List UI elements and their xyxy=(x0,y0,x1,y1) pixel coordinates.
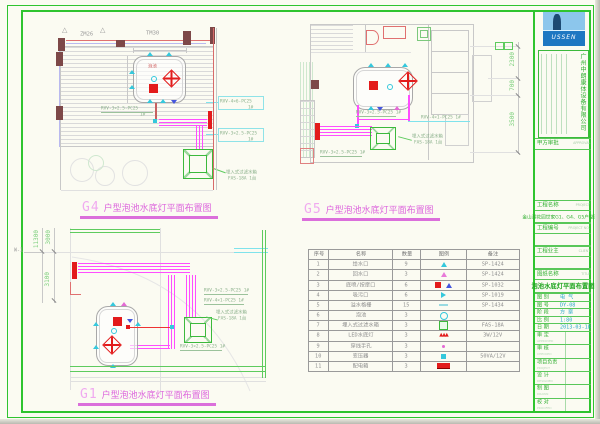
g4-filter-tank xyxy=(183,149,213,179)
g5-stair-step xyxy=(431,72,469,94)
legend-cell-text: 吸污口 xyxy=(353,293,369,298)
g4-dim-line xyxy=(133,50,186,51)
info-value: DY-08 xyxy=(560,303,575,308)
legend-row: 5溢水格栅15SP-1434 xyxy=(309,301,519,311)
info-label: 图 号 xyxy=(537,303,549,308)
titleblock-info-row: 图 别电 气 xyxy=(535,294,591,302)
g4-window-label: TM30 xyxy=(146,31,159,35)
legend-cell: 5 xyxy=(309,301,329,310)
g5-led-underwater-light xyxy=(369,81,378,90)
g4-inlet-marker xyxy=(160,99,166,103)
legend-cell-text: 底喷/按摩口 xyxy=(346,282,375,287)
g1-drawing-title: G1户型泡池水底灯平面布置图 xyxy=(78,383,216,404)
legend-cell: 11 xyxy=(309,362,329,371)
g1-dim-line xyxy=(42,228,43,303)
g1-junction-box xyxy=(170,325,174,329)
sign-label: 校 对 xyxy=(537,400,549,405)
project-label: 工程名称 xyxy=(537,203,559,208)
g4-dim-tick xyxy=(186,48,187,53)
legend-cell: 序号 xyxy=(309,250,329,259)
client-en: CLIENT xyxy=(578,250,590,253)
legend-cell-text: 配电箱 xyxy=(353,364,369,369)
number-value-row xyxy=(535,234,591,246)
legend-cell-text: 9 xyxy=(317,344,320,349)
legend-cell: SP-1424 xyxy=(467,270,519,279)
g1-green-line xyxy=(70,229,160,230)
g5-bath-fixture xyxy=(383,26,406,39)
g5-cable-label-bottom: RVV-3×2.5-PC25 1# xyxy=(320,150,365,154)
legend-cell: 6 xyxy=(309,311,329,320)
titleblock-info-row: 阶 段方 案 xyxy=(535,309,591,317)
g5-cable-line xyxy=(357,119,409,120)
red-filled-rect-icon xyxy=(437,363,450,369)
g4-cable-label-bottom: RVV-3×2.5-PC25 xyxy=(101,106,138,110)
g1-pool-outline xyxy=(96,306,138,366)
g4-filter-label-2: FAS-18A 1台 xyxy=(228,176,256,180)
legend-cell: 回水口 xyxy=(329,270,393,279)
magenta-triangle-icon xyxy=(441,272,447,277)
logo-brand-text: USSEN xyxy=(543,34,585,42)
g4-wall-column xyxy=(56,52,63,66)
g5-cable-label-pool: RVV-3×2.5-PC25 1# xyxy=(356,110,401,114)
legend-cell-text: 6 xyxy=(405,293,408,298)
approval-en: APPROVAL xyxy=(573,142,590,145)
g1-dim-a: 3000 xyxy=(45,230,52,244)
legend-row: 4吸污口6SP-1019 xyxy=(309,291,519,301)
legend-row: 8LED水底灯33W/12V xyxy=(309,331,519,341)
legend-cell-text: 11 xyxy=(315,364,321,369)
legend-row: 11配电箱3 xyxy=(309,362,519,371)
legend-cell-text: 泡池 xyxy=(355,313,366,318)
g5-filter-tank xyxy=(370,127,396,150)
legend-cell-text: SP-1019 xyxy=(482,293,504,298)
g1-red-bracket xyxy=(70,282,81,295)
cyan-circle-icon xyxy=(440,312,448,320)
g5-leader-line xyxy=(320,156,362,157)
legend-cell-text: 8 xyxy=(317,333,320,338)
number-en: PROJECT NO. xyxy=(569,227,590,230)
sign-sublabel: APPROVED xyxy=(537,340,553,343)
g5-leader-line xyxy=(408,121,470,122)
g4-roof-mark-icon: △ xyxy=(100,27,105,34)
g1-grid-ref: W-1 xyxy=(14,248,23,252)
legend-row: 10变压器350VA/12V xyxy=(309,352,519,362)
legend-cell-text: 序号 xyxy=(313,252,324,257)
sign-sublabel: DESIGNED xyxy=(537,380,553,383)
legend-cell xyxy=(421,291,467,300)
legend-cell-text: 3 xyxy=(405,323,408,328)
g5-inlet-marker xyxy=(385,63,391,67)
g4-cable-tag: 1# xyxy=(248,137,253,141)
g5-dim-extension xyxy=(488,78,518,79)
legend-cell: 6 xyxy=(393,281,421,290)
g4-title-code: G4 xyxy=(82,200,100,215)
legend-cell: 吸污口 xyxy=(329,291,393,300)
g4-shrub-green xyxy=(88,155,104,171)
g1-filter-label-1: 埋入式过滤水箱 xyxy=(216,310,247,314)
g4-conduit-bundle-h xyxy=(159,119,207,126)
paper-edge-bottom xyxy=(0,419,600,424)
legend-cell-text: 图例 xyxy=(438,252,449,257)
info-label: 阶 段 xyxy=(537,310,549,315)
g5-level-mark xyxy=(504,42,513,50)
g4-cable-drop xyxy=(155,103,157,120)
legend-cell-text: 穿线手孔 xyxy=(350,344,371,349)
legend-cell: SP-1434 xyxy=(467,301,519,310)
legend-cell xyxy=(421,281,467,290)
legend-cell xyxy=(421,260,467,269)
g4-leader-line xyxy=(101,112,153,113)
g4-inlet-marker xyxy=(166,52,172,56)
legend-cell: 埋入式过滤水箱 xyxy=(329,321,393,330)
cyan-play-icon xyxy=(441,292,446,298)
g4-inlet-marker xyxy=(147,99,153,103)
client-row: 工程业主 CLIENT xyxy=(535,246,591,257)
legend-cell: 10 xyxy=(309,352,329,361)
g5-stair-step xyxy=(431,51,469,73)
g1-title-text: 户型泡池水底灯平面布置图 xyxy=(102,391,210,401)
g1-leader-line xyxy=(204,304,244,305)
g4-dim-line xyxy=(127,56,128,103)
number-label: 工程编号 xyxy=(537,226,559,231)
g5-inlet-marker xyxy=(368,63,374,67)
g4-pool-label: 泡池 xyxy=(148,64,157,68)
legend-cell: 4 xyxy=(309,291,329,300)
g5-dim-value-3: 3500 xyxy=(509,112,516,126)
g4-junction-box xyxy=(153,119,157,123)
g1-fence-line xyxy=(70,371,266,372)
g1-inlet-marker xyxy=(93,322,99,326)
legend-cell: 3 xyxy=(393,321,421,330)
legend-cell: 1 xyxy=(309,260,329,269)
legend-cell: SP-1019 xyxy=(467,291,519,300)
legend-cell-text: 3 xyxy=(405,364,408,369)
g4-distribution-box xyxy=(208,111,212,129)
g5-stair-step xyxy=(431,93,469,115)
sign-label: 审 定 xyxy=(537,333,549,338)
project-en: PROJECT xyxy=(576,204,590,207)
sign-sublabel: DRAWN xyxy=(537,393,548,396)
legend-cell-text: SP-1032 xyxy=(482,282,504,287)
legend-cell: SP-1032 xyxy=(467,281,519,290)
g1-cable-label-2: RVV-4×1-PC25 1# xyxy=(204,298,244,302)
g4-wall-column xyxy=(116,40,125,47)
g4-dim-tick xyxy=(133,48,134,53)
approval-row: 甲方审批 APPROVAL xyxy=(535,138,591,150)
sign-label: 设 计 xyxy=(537,373,549,378)
legend-cell-text: 7 xyxy=(317,323,320,328)
g4-right-boundary xyxy=(216,28,217,190)
legend-cell: 备注 xyxy=(467,250,519,259)
legend-cell: 9 xyxy=(309,342,329,351)
legend-cell-text: 2 xyxy=(317,272,320,277)
g4-drawing-title: G4户型泡池水底灯平面布置图 xyxy=(80,196,218,217)
legend-cell xyxy=(421,270,467,279)
sign-label: 制 图 xyxy=(537,386,549,391)
g5-dim-value-2: 700 xyxy=(509,80,516,91)
legend-row: 2回水口3SP-1424 xyxy=(309,270,519,280)
g4-cable-label-right-top: RVV-4×6-PC25 xyxy=(220,99,252,103)
sign-rows: 审 定APPROVED审 核CHECKED项目负责PROJECT设 计DESIG… xyxy=(535,331,591,411)
titleblock-sign-row: 审 定APPROVED xyxy=(535,331,591,344)
legend-cell-text: 3 xyxy=(405,272,408,277)
legend-cell-text: FAS-18A xyxy=(482,323,504,328)
legend-cell-text: 变压器 xyxy=(353,354,369,359)
g1-green-line xyxy=(70,232,160,233)
g1-drain-marker xyxy=(127,319,133,323)
company-logo: USSEN xyxy=(543,12,585,46)
legend-cell xyxy=(467,362,519,371)
company-box: 广州中朗康体设备有限公司 xyxy=(538,50,589,138)
legend-cell: 3 xyxy=(393,331,421,340)
legend-cell-text: 6 xyxy=(317,313,320,318)
info-value: 1:80 xyxy=(560,318,572,323)
g5-stair-step xyxy=(431,30,469,52)
g1-inlet-marker xyxy=(93,345,99,349)
legend-cell: 配电箱 xyxy=(329,362,393,371)
legend-cell: 3W/12V xyxy=(467,331,519,340)
legend-cell xyxy=(421,331,467,340)
legend-cell-text: 名称 xyxy=(355,252,366,257)
g4-right-wall xyxy=(213,28,214,190)
g4-wall-column xyxy=(183,31,191,45)
g4-deck-bottom-line xyxy=(61,146,213,147)
legend-cell: 6 xyxy=(393,291,421,300)
g5-filter-label-2: FAS-18A 1台 xyxy=(414,140,442,144)
g5-dim-value-1: 2300 xyxy=(509,52,516,66)
titleblock-sign-row: 校 对PROOFED xyxy=(535,398,591,411)
sign-label: 项目负责 xyxy=(537,360,557,365)
paper-edge-right xyxy=(595,0,600,424)
legend-cell-text: 3 xyxy=(405,354,408,359)
legend-cell: 底喷/按摩口 xyxy=(329,281,393,290)
g1-conduit-bundle-h xyxy=(78,263,190,275)
g1-cable-label-3: RVV-3×2.5-PC25 1# xyxy=(180,344,225,348)
g1-dim-line xyxy=(54,228,55,303)
g1-leader-line xyxy=(204,294,248,295)
sign-sublabel: CHECKED xyxy=(537,353,552,356)
g1-inlet-marker xyxy=(110,302,116,306)
company-info-lines xyxy=(541,54,567,134)
g1-title-code: G1 xyxy=(80,387,98,402)
legend-cell-text: 5 xyxy=(317,303,320,308)
legend-cell: 3 xyxy=(393,362,421,371)
g1-fence-line xyxy=(70,366,266,367)
legend-cell xyxy=(421,301,467,310)
g4-door-label: ZM26 xyxy=(80,32,93,36)
legend-row: 3底喷/按摩口6SP-1032 xyxy=(309,281,519,291)
legend-header-row: 序号名称数量图例备注 xyxy=(309,250,519,260)
legend-cell-text: 溢水格栅 xyxy=(350,303,371,308)
legend-cell: 泡池 xyxy=(329,311,393,320)
legend-cell-text: 埋入式过滤水箱 xyxy=(342,323,379,328)
g1-dim-b: 3100 xyxy=(44,272,51,286)
legend-cell: 数量 xyxy=(393,250,421,259)
legend-cell: 溢水格栅 xyxy=(329,301,393,310)
g1-boundary-line xyxy=(70,381,266,382)
g4-inlet-marker xyxy=(147,52,153,56)
legend-cell: LED水底灯 xyxy=(329,331,393,340)
cyan-filled-square-icon xyxy=(441,354,446,359)
legend-cell-text: 3 xyxy=(405,313,408,318)
g4-drain-marker xyxy=(171,100,177,104)
g1-dim-total: 11300 xyxy=(33,230,40,248)
info-label: 日 期 xyxy=(537,325,549,330)
legend-cell xyxy=(421,321,467,330)
legend-cell-text: SP-1424 xyxy=(482,272,504,277)
legend-cell xyxy=(467,342,519,351)
cyan-triangle-icon xyxy=(441,262,447,267)
g5-title-code: G5 xyxy=(304,202,322,217)
legend-cell: 9 xyxy=(393,260,421,269)
legend-cell-text: 15 xyxy=(403,303,409,308)
g1-boundary-green-v xyxy=(262,230,263,378)
g5-distribution-box xyxy=(315,123,320,140)
legend-table: 序号名称数量图例备注1给水口9SP-14242回水口3SP-14243底喷/按摩… xyxy=(308,249,520,372)
g4-wall-column xyxy=(58,38,65,51)
legend-cell: 图例 xyxy=(421,250,467,259)
legend-cell: 3 xyxy=(393,270,421,279)
legend-cell xyxy=(421,342,467,351)
g4-title-text: 户型泡池水底灯平面布置图 xyxy=(104,204,212,214)
info-value: 电 气 xyxy=(560,295,573,300)
legend-cell: 50VA/12V xyxy=(467,352,519,361)
legend-row: 7埋入式过滤水箱3FAS-18A xyxy=(309,321,519,331)
legend-cell-text: 备注 xyxy=(488,252,499,257)
legend-cell xyxy=(421,311,467,320)
sign-label: 审 核 xyxy=(537,346,549,351)
g1-filter-label-2: FAS-18A 1台 xyxy=(218,316,246,320)
client-label: 工程业主 xyxy=(537,249,559,254)
g1-cable-line xyxy=(130,327,172,328)
g1-cable-label-1: RVV-3×2.5-PC25 1# xyxy=(204,288,249,292)
legend-cell: 3 xyxy=(309,281,329,290)
drawing-title-row: 泡池水底灯平面布置图 xyxy=(535,280,591,293)
g1-boundary-green-v xyxy=(265,230,266,378)
titleblock-sign-row: 设 计DESIGNED xyxy=(535,371,591,384)
number-row: 工程编号 PROJECT NO. xyxy=(535,223,591,234)
g5-dim-extension xyxy=(470,95,518,96)
legend-cell xyxy=(421,362,467,371)
titleblock-sign-row: 项目负责PROJECT xyxy=(535,358,591,371)
drawing-title-value: 泡池水底灯平面布置图 xyxy=(532,282,595,291)
legend-cell-text: SP-1434 xyxy=(482,303,504,308)
g5-deck-hatch xyxy=(311,25,353,51)
legend-cell: 2 xyxy=(309,270,329,279)
legend-cell-text: SP-1424 xyxy=(482,262,504,267)
titleblock-sign-row: 制 图DRAWN xyxy=(535,384,591,397)
g4-deck-top-line xyxy=(61,46,213,47)
g5-dim-extension xyxy=(470,152,518,153)
g5-equipment-box-inner xyxy=(420,30,428,38)
g1-grid-ref-line xyxy=(24,252,42,253)
info-rows: 图 别电 气图 号DY-08阶 段方 案比 例1:80日 期2013-03-18 xyxy=(535,293,591,332)
legend-row: 6泡池3 xyxy=(309,311,519,321)
green-square-icon xyxy=(439,321,448,330)
legend-cell-text: 10 xyxy=(315,354,321,359)
g1-filter-tank xyxy=(184,317,212,343)
g1-led-underwater-light xyxy=(113,317,122,326)
titleblock-info-row: 图 号DY-08 xyxy=(535,302,591,310)
sheet-title-row: 图纸名称 TITLE xyxy=(535,269,591,280)
legend-cell xyxy=(421,352,467,361)
legend-cell: 15 xyxy=(393,301,421,310)
legend-cell: 8 xyxy=(309,331,329,340)
g5-bubble-jet-marker xyxy=(387,84,393,90)
company-name: 广州中朗康体设备有限公司 xyxy=(579,53,586,137)
g4-filter-label-1: 埋入式过滤水箱 xyxy=(226,170,257,174)
g5-drawing-title: G5户型泡池水底灯平面布置图 xyxy=(302,198,440,219)
g1-boundary-line xyxy=(70,377,266,378)
drawing-sheet: △ △ ZM26 TM30 泡池 RVV-3×2.5-PC25 1# RVV-4… xyxy=(0,0,600,424)
legend-cell-text: 3 xyxy=(405,333,408,338)
g4-roof-mark-icon: △ xyxy=(62,27,67,34)
g4-inlet-marker xyxy=(129,85,135,89)
g5-wall-column xyxy=(311,80,319,89)
legend-cell: 变压器 xyxy=(329,352,393,361)
legend-cell-text: 4 xyxy=(317,293,320,298)
logo-wave-icon xyxy=(543,30,585,31)
g1-conduit-bundle-v2 xyxy=(168,275,175,349)
g4-cable-label-right-bot: RVV-3×2.5-PC25 xyxy=(220,131,257,135)
g5-wall-line xyxy=(311,52,411,53)
legend-cell: 3 xyxy=(393,311,421,320)
legend-cell-text: 3 xyxy=(405,344,408,349)
g5-cable-line xyxy=(408,95,410,121)
legend-cell: FAS-18A xyxy=(467,321,519,330)
legend-cell-text: 3W/12V xyxy=(484,333,503,338)
legend-row: 1给水口9SP-1424 xyxy=(309,260,519,270)
g5-level-mark xyxy=(495,42,504,50)
g4-ground-line xyxy=(61,190,213,191)
legend-cell-text: 50VA/12V xyxy=(480,354,505,359)
red-star-icon xyxy=(439,333,448,338)
g4-led-underwater-light xyxy=(149,84,158,93)
g1-leader-line xyxy=(180,350,222,351)
cyan-dash-icon xyxy=(439,304,448,306)
approval-label: 甲方审批 xyxy=(537,141,559,146)
g5-cable-line xyxy=(357,105,359,125)
legend-cell: 3 xyxy=(393,352,421,361)
info-value: 方 案 xyxy=(560,310,573,315)
project-row: 工程名称 PROJECT xyxy=(535,200,591,211)
g5-cable-label-right: RVV-4×1-PC25 1# xyxy=(421,115,461,119)
legend-cell xyxy=(467,311,519,320)
g1-conduit-bundle-v xyxy=(186,275,198,317)
legend-cell-text: 给水口 xyxy=(353,262,369,267)
g1-bubble-jet-marker xyxy=(111,328,117,334)
legend-cell: 给水口 xyxy=(329,260,393,269)
g5-filter-label-1: 埋入式过滤水箱 xyxy=(412,134,443,138)
legend-cell-text: 3 xyxy=(317,282,320,287)
g4-wall-line-top xyxy=(66,40,214,41)
legend-cell: 3 xyxy=(393,342,421,351)
g4-cable-tag: 1# xyxy=(248,105,253,109)
info-label: 比 例 xyxy=(537,318,549,323)
legend-cell-text: 回水口 xyxy=(353,272,369,277)
title-block: USSEN 广州中朗康体设备有限公司 甲方审批 APPROVAL 工程名称 PR… xyxy=(533,10,591,413)
legend-cell-text: 1 xyxy=(317,262,320,267)
project-name: 金山湖花园世家G1、G4、G5户型泡池 xyxy=(523,213,600,220)
red-square-blue-triangle-icon xyxy=(435,282,452,289)
g5-red-outline xyxy=(300,148,314,164)
g5-leader-line xyxy=(356,116,396,117)
g5-conduit-bundle-h xyxy=(320,126,372,138)
g1-return-marker xyxy=(121,302,127,306)
legend-cell: 7 xyxy=(309,321,329,330)
info-label: 图 别 xyxy=(537,295,549,300)
g1-cable-node xyxy=(126,325,130,329)
